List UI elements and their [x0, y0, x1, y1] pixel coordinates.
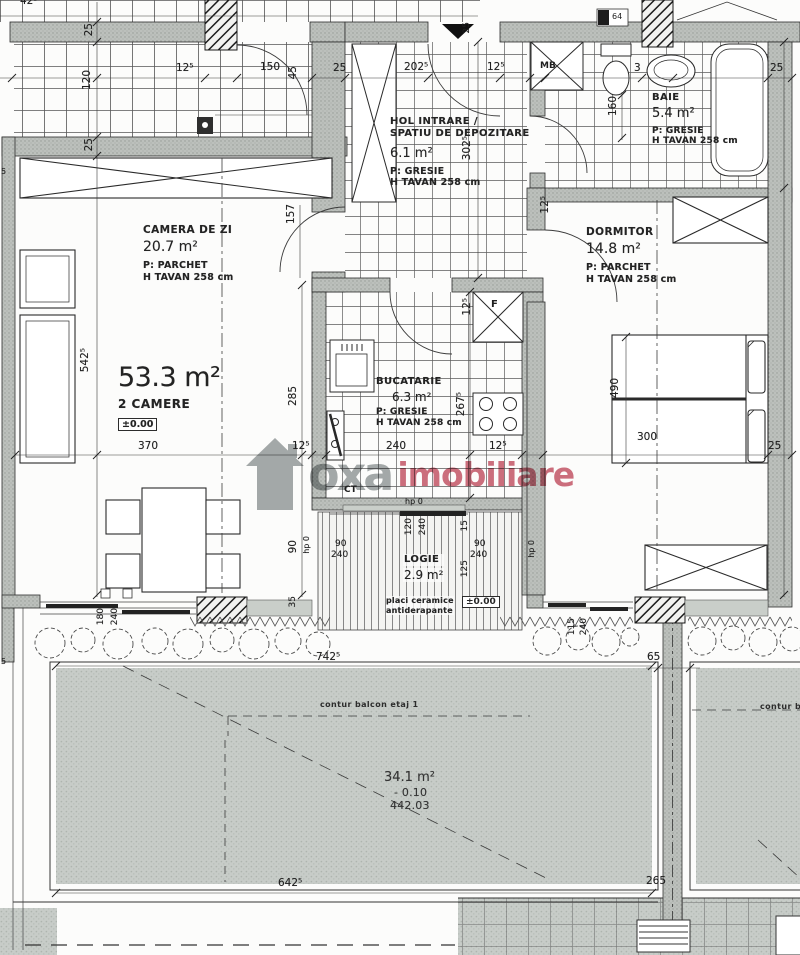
floor-plan-scan: oxa imobiliare CAMERA DE ZI 20.7 m² P: P…: [0, 0, 800, 955]
chair: [206, 554, 240, 588]
walkway: [458, 898, 800, 955]
dining-table: [142, 488, 206, 592]
armchair: [20, 250, 75, 308]
terrace-left: [50, 662, 658, 890]
pillow: [748, 341, 765, 393]
terrace-steps: [637, 920, 690, 952]
floor-plan-drawing: [0, 0, 800, 955]
chair: [106, 554, 140, 588]
hallway-wardrobe: [352, 44, 396, 202]
chair: [206, 500, 240, 534]
bathtub: [711, 44, 768, 176]
terrace-right: [690, 662, 800, 890]
toilet-tank: [601, 44, 631, 56]
sofa: [20, 315, 75, 463]
chair: [106, 500, 140, 534]
stove: [473, 393, 523, 435]
pillow: [748, 410, 765, 462]
loggia-floor: [318, 512, 522, 630]
